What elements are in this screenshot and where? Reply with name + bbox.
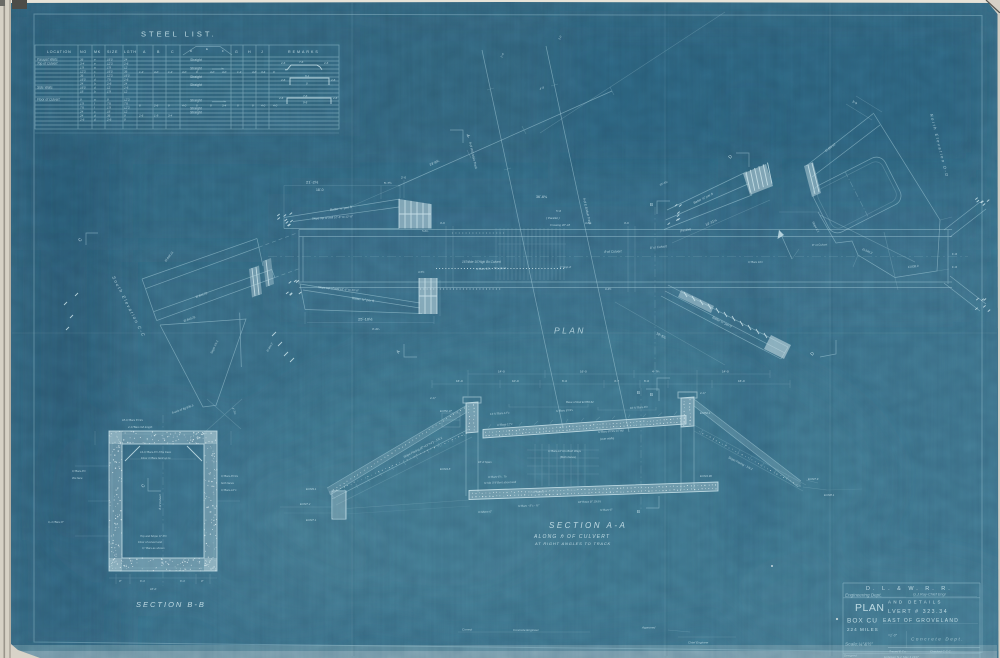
svg-text:2-6: 2-6 [153, 104, 159, 108]
svg-text:¾″Bars-6″c: ¾″Bars-6″c [72, 469, 87, 473]
svg-text:25ʼ-10½: 25ʼ-10½ [358, 317, 373, 322]
svg-text:¾″Bars-6″: ¾″Bars-6″ [600, 508, 614, 512]
svg-text:D. L. & W. R. R.: D. L. & W. R. R. [866, 586, 953, 592]
svg-text:both faces: both faces [221, 481, 235, 485]
svg-text:3ʼ-2¼: 3ʼ-2¼ [372, 327, 380, 331]
svg-text:El.852.37: El.852.37 [440, 409, 452, 413]
svg-text:12: 12 [124, 89, 128, 93]
svg-text:1″ Exp.Jt: 1″ Exp.Jt [560, 265, 571, 269]
svg-text:SECTION A-A: SECTION A-A [549, 521, 627, 530]
svg-text:¾″Bars-12″ctrs Both Ways: ¾″Bars-12″ctrs Both Ways [548, 449, 581, 453]
svg-text:MK: MK [94, 50, 101, 54]
svg-text:NO: NO [80, 50, 87, 54]
svg-text:3-5½: 3-5½ [418, 270, 425, 274]
svg-text:4ʼ-0: 4ʼ-0 [624, 221, 629, 225]
svg-text:Correct: Correct [462, 628, 472, 632]
svg-text:16ʼWide 10ʼHigh Bx Culvert: 16ʼWide 10ʼHigh Bx Culvert [462, 260, 501, 264]
svg-text:18″Rows B″ 10ctrs: 18″Rows B″ 10ctrs [578, 499, 602, 504]
svg-text:F: F [222, 49, 224, 53]
svg-text:SIZE: SIZE [107, 50, 118, 54]
svg-text:3-4: 3-4 [261, 70, 266, 74]
svg-text:14ʼ-0: 14ʼ-0 [722, 370, 729, 374]
svg-text:2-6: 2-6 [278, 96, 284, 100]
svg-text:2-6: 2-6 [138, 114, 144, 118]
svg-text:ℏ of Culvert: ℏ of Culvert [158, 494, 162, 510]
svg-text:16ʼ-0: 16ʼ-0 [580, 370, 587, 374]
svg-text:4ʼ-7: 4ʼ-7 [614, 379, 619, 383]
svg-text:16ʼ-0: 16ʼ-0 [456, 379, 463, 383]
svg-text:H: H [248, 50, 251, 54]
svg-text:2-6: 2-6 [330, 78, 336, 82]
svg-text:Chief Engineer: Chief Engineer [688, 641, 709, 645]
svg-text:6ʼ-0: 6ʼ-0 [562, 379, 567, 383]
svg-text:Engineering Dept.: Engineering Dept. [845, 592, 882, 597]
svg-text:ALONG ℏ OF CULVERT: ALONG ℏ OF CULVERT [533, 534, 610, 540]
svg-text:18: 18 [80, 89, 84, 93]
svg-text:REMARKS: REMARKS [288, 50, 320, 54]
svg-text:6ʼ-0: 6ʼ-0 [644, 379, 649, 383]
svg-text:(Both Faces): (Both Faces) [560, 455, 576, 459]
svg-text:LGTH: LGTH [124, 50, 137, 54]
svg-text:B: B [637, 509, 640, 514]
svg-text:STEEL LIST.: STEEL LIST. [141, 30, 217, 39]
svg-text:PLAN: PLAN [554, 326, 586, 336]
svg-text:El.849.1: El.849.1 [306, 487, 317, 491]
svg-text:C: C [171, 50, 174, 54]
svg-text:El.844.96: El.844.96 [700, 474, 712, 478]
svg-text:SECTION B-B: SECTION B-B [136, 600, 206, 609]
svg-text:( Parallel ): ( Parallel ) [546, 216, 560, 220]
svg-text:Side Walls: Side Walls [37, 85, 53, 89]
svg-text:Approved: Approved [641, 626, 656, 630]
svg-text:AT RIGHT ANGLES TO TRACK: AT RIGHT ANGLES TO TRACK [534, 541, 611, 546]
svg-text:7-6: 7-6 [303, 94, 308, 98]
svg-text:16ʼ-0: 16ʼ-0 [150, 587, 157, 591]
svg-text:36ʼ-6¾: 36ʼ-6¾ [536, 195, 548, 199]
svg-text:Straight: Straight [190, 111, 203, 115]
svg-text:4-0: 4-0 [261, 104, 266, 108]
svg-text:4-0: 4-0 [273, 104, 278, 108]
svg-text:El.847.1: El.847.1 [306, 518, 317, 522]
svg-text:2-6: 2-6 [106, 117, 112, 121]
svg-text:PLAN: PLAN [855, 602, 884, 614]
svg-text:LOCATION: LOCATION [47, 50, 72, 54]
svg-text:1-3: 1-3 [237, 70, 242, 74]
svg-text:Floor of Culvert: Floor of Culvert [37, 97, 61, 101]
svg-text:B: B [650, 392, 653, 397]
svg-text:2-6: 2-6 [280, 78, 286, 82]
svg-text:7-6: 7-6 [299, 60, 304, 64]
svg-text:AND DETAILS: AND DETAILS [888, 600, 943, 605]
svg-text:Straight: Straight [190, 58, 203, 62]
svg-text:2-6: 2-6 [79, 117, 85, 121]
svg-text:8″ ot Culvert: 8″ ot Culvert [812, 242, 828, 247]
svg-text:8-1: 8-1 [305, 74, 310, 78]
svg-text:½″Bars-6″c. To: ½″Bars-6″c. To [488, 474, 507, 479]
svg-text:2-6: 2-6 [332, 96, 338, 100]
svg-text:G: G [235, 50, 239, 54]
svg-text:5-6¾: 5-6¾ [422, 229, 429, 233]
svg-text:J: J [261, 50, 264, 54]
svg-text:LVERT # 323.34: LVERT # 323.34 [888, 609, 948, 615]
svg-text:18-¾″Bars 6″ctrs: 18-¾″Bars 6″ctrs [122, 418, 144, 422]
svg-text:Designed: Designed [844, 653, 857, 657]
svg-text:9-4½: 9-4½ [605, 287, 612, 291]
svg-text:E: E [206, 47, 208, 51]
svg-text:G.J.Ray-Chief Engr: G.J.Ray-Chief Engr [913, 593, 947, 597]
svg-text:¾″Bars 10ʼc: ¾″Bars 10ʼc [748, 260, 764, 264]
svg-text:Floor of culvert and: Floor of culvert and [138, 540, 162, 544]
svg-text:4-0: 4-0 [222, 70, 227, 74]
svg-text:Straight: Straight [190, 83, 203, 87]
svg-text:¾-¾″Bars 6″: ¾-¾″Bars 6″ [48, 520, 65, 524]
svg-text:4-0: 4-0 [210, 70, 215, 74]
svg-text:El.847.9: El.847.9 [808, 477, 819, 481]
svg-text:this face: this face [72, 476, 83, 480]
svg-text:14-¾″Bars-6″c-This Face: 14-¾″Bars-6″c-This Face [140, 450, 172, 454]
svg-text:1ʼ-6: 1ʼ-6 [952, 265, 957, 269]
svg-text:Crossing 40°-18: Crossing 40°-18 [550, 223, 571, 227]
svg-text:1-3: 1-3 [139, 70, 144, 74]
svg-text:¾″Bars-6″ctrs: ¾″Bars-6″ctrs [221, 474, 239, 478]
svg-text:1ʼ-6: 1ʼ-6 [952, 252, 957, 256]
svg-text:21ʼ-2½: 21ʼ-2½ [306, 180, 319, 185]
svg-text:B: B [637, 390, 640, 395]
svg-text:○- 8″rows½: ○- 8″rows½ [530, 489, 545, 494]
svg-text:EAST OF GROVELAND: EAST OF GROVELAND [883, 618, 959, 624]
svg-text:3-4: 3-4 [168, 114, 173, 118]
svg-text:¾″Bars - 8″c - ½″: ¾″Bars - 8″c - ½″ [518, 503, 540, 508]
svg-text:4-0: 4-0 [182, 70, 187, 74]
svg-text:½¾Bars-6″: ½¾Bars-6″ [478, 509, 493, 514]
svg-text:18ʼ-0: 18ʼ-0 [316, 188, 324, 192]
svg-text:2ʼ-0: 2ʼ-0 [401, 176, 406, 180]
svg-text:El.852.1: El.852.1 [700, 411, 711, 415]
svg-text:Concrete Dept.: Concrete Dept. [911, 636, 964, 641]
svg-text:¾″Bars-12″c: ¾″Bars-12″c [221, 488, 237, 492]
svg-text:El.844.8: El.844.8 [440, 467, 451, 471]
svg-text:16ʼ-0 Span: 16ʼ-0 Span [478, 460, 492, 464]
svg-text:Checked C.C.C.: Checked C.C.C. [930, 649, 952, 653]
svg-text:B: B [650, 202, 653, 207]
svg-text:4-0: 4-0 [182, 104, 187, 108]
svg-text:1-9: 1-9 [154, 114, 159, 118]
svg-text:4-0: 4-0 [252, 70, 257, 74]
svg-text:Scale:¼″&½″: Scale:¼″&½″ [845, 641, 873, 648]
svg-text:=1ʼ-0″: =1ʼ-0″ [888, 634, 898, 638]
svg-text:4ʼ-0: 4ʼ-0 [440, 221, 445, 225]
svg-text:2-¾″: 2-¾″ [429, 396, 437, 400]
svg-text:9-6: 9-6 [303, 101, 308, 105]
svg-text:3-4: 3-4 [222, 104, 227, 108]
svg-text:B: B [157, 50, 160, 54]
svg-text:6ʼ-3: 6ʼ-3 [180, 579, 185, 583]
svg-text:1-3: 1-3 [168, 70, 173, 74]
svg-text:14ʼ-0: 14ʼ-0 [498, 370, 505, 374]
svg-text:ℏ of Culvert: ℏ of Culvert [604, 249, 623, 254]
svg-text:El.848.1: El.848.1 [824, 493, 835, 497]
svg-text:Top and Slope ¾″-6″c: Top and Slope ¾″-6″c [140, 534, 168, 538]
svg-text:Base of Rail El.856.62: Base of Rail El.856.62 [566, 400, 594, 404]
svg-text:A: A [143, 50, 146, 54]
svg-text:Concrete Engineer: Concrete Engineer [513, 628, 540, 632]
svg-text:5ʼ-6: 5ʼ-6 [556, 209, 561, 213]
svg-text:224 MILES: 224 MILES [847, 627, 879, 632]
svg-text:Straight: Straight [190, 75, 203, 79]
svg-text:6ʼ-3: 6ʼ-3 [140, 579, 145, 583]
svg-text:4ʼ-7¼: 4ʼ-7¼ [652, 370, 660, 374]
svg-text:Straight: Straight [190, 99, 203, 103]
svg-text:2-¾″: 2-¾″ [699, 391, 707, 395]
svg-text:3-6½: 3-6½ [585, 221, 592, 225]
svg-text:Traced E.Co.: Traced E.Co. [889, 649, 907, 653]
svg-text:10ʼ-0: 10ʼ-0 [512, 379, 519, 383]
svg-text:El.847.2: El.847.2 [300, 502, 311, 506]
svg-text:1'9: 1'9 [107, 89, 111, 93]
svg-text:Top of Culvert: Top of Culvert [37, 61, 58, 65]
svg-text:4-0: 4-0 [154, 70, 159, 74]
svg-text:2-6: 2-6 [323, 61, 329, 65]
svg-text:2-¾″Bars full length: 2-¾″Bars full length [127, 425, 153, 429]
svg-text:BOX CU: BOX CU [847, 618, 878, 625]
svg-text:2-6: 2-6 [280, 61, 286, 65]
svg-text:¾″ Bars as shown: ¾″ Bars as shown [142, 546, 165, 550]
svg-text:16ʼ-0: 16ʼ-0 [738, 379, 745, 383]
svg-text:5ʼ-7½: 5ʼ-7½ [384, 181, 392, 185]
svg-text:Floor ¾″Bars bent up to: Floor ¾″Bars bent up to [141, 456, 171, 460]
